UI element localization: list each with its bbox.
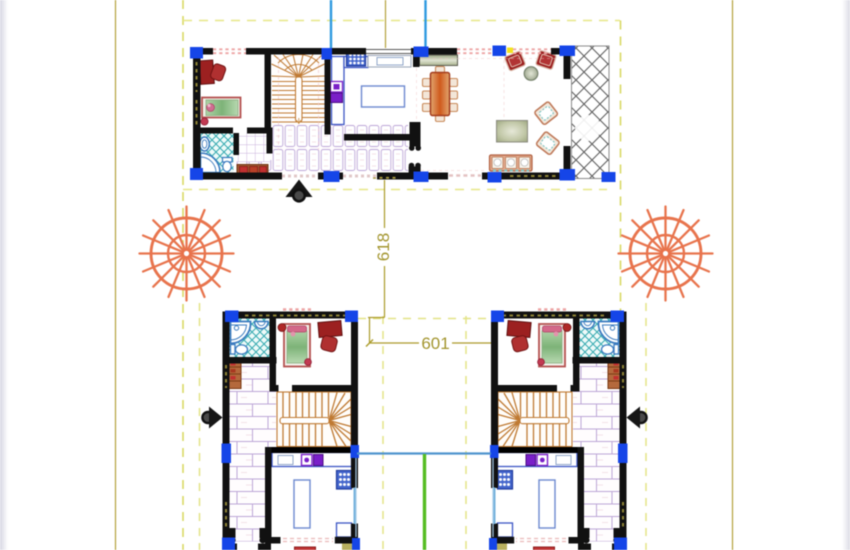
svg-text:618: 618 (374, 233, 393, 261)
svg-text:601: 601 (421, 334, 449, 353)
